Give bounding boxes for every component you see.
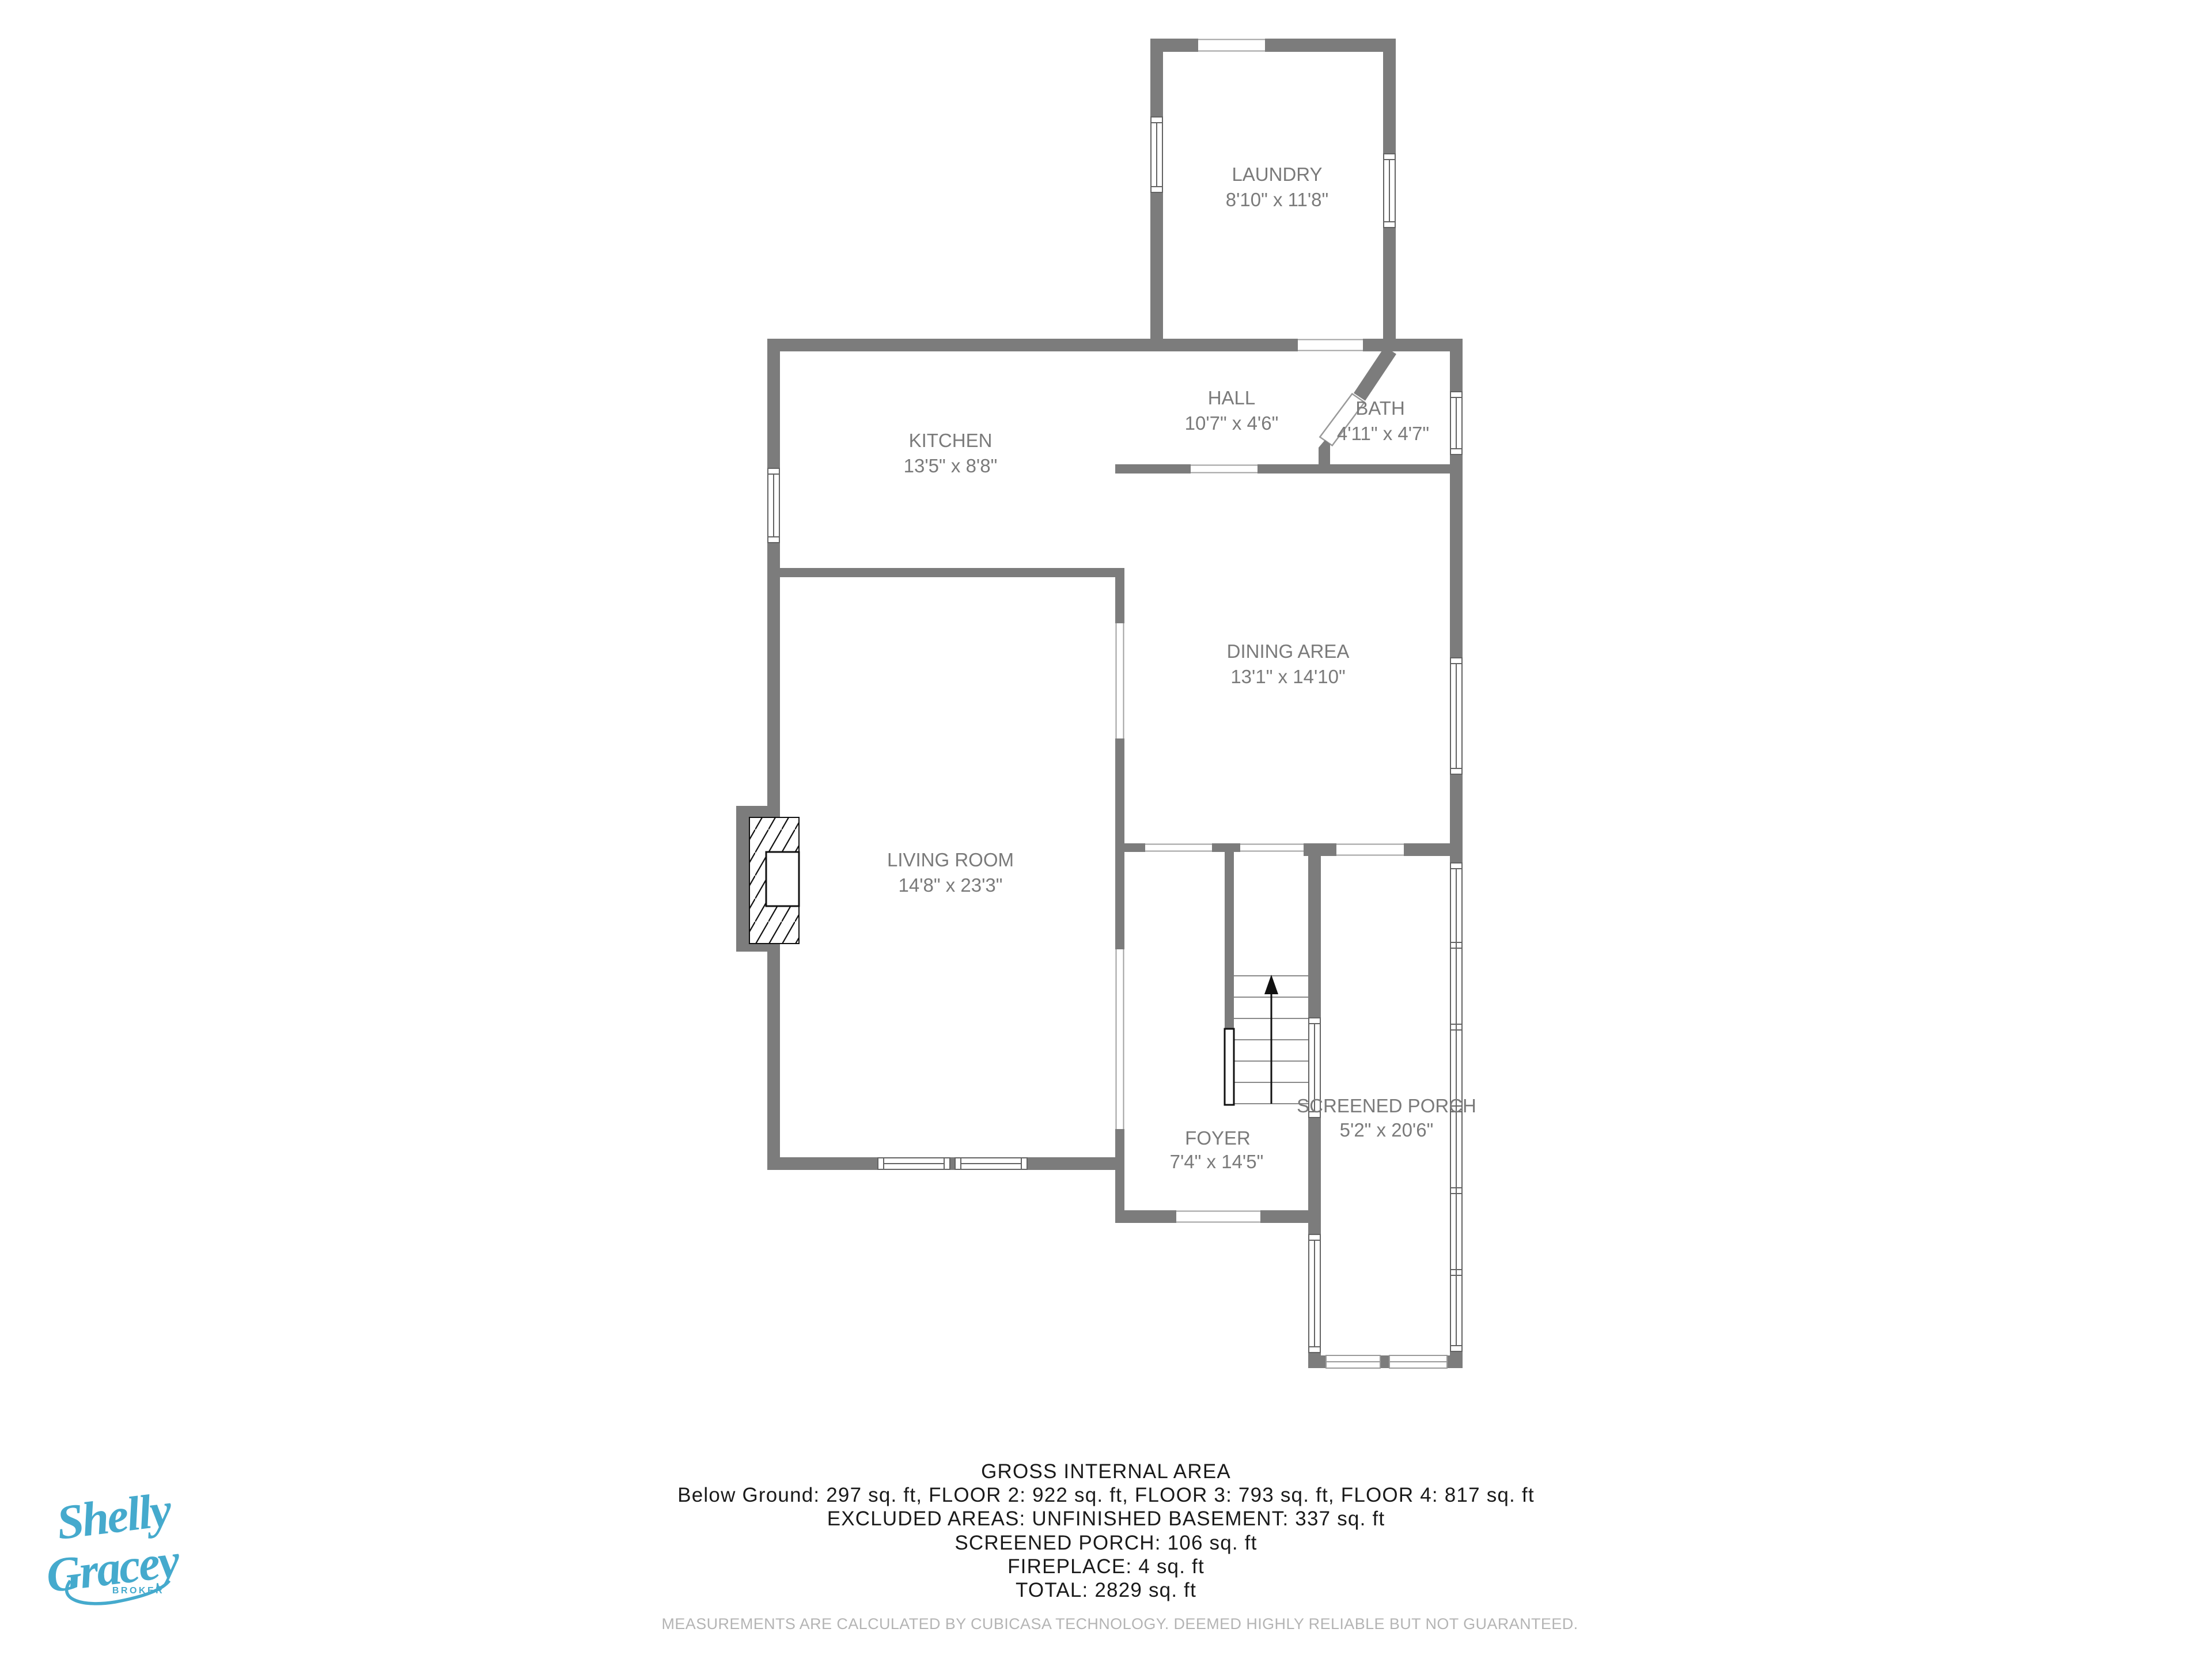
svg-text:Below Ground: 297 sq. ft, FLOO: Below Ground: 297 sq. ft, FLOOR 2: 922 s… bbox=[677, 1484, 1535, 1506]
svg-text:BATH: BATH bbox=[1355, 397, 1405, 419]
svg-text:EXCLUDED AREAS: UNFINISHED BAS: EXCLUDED AREAS: UNFINISHED BASEMENT: 337… bbox=[827, 1508, 1385, 1530]
svg-text:DINING AREA: DINING AREA bbox=[1227, 641, 1350, 662]
svg-text:LAUNDRY: LAUNDRY bbox=[1232, 164, 1322, 185]
svg-text:FIREPLACE: 4 sq. ft: FIREPLACE: 4 sq. ft bbox=[1007, 1555, 1205, 1578]
svg-text:4'11" x 4'7": 4'11" x 4'7" bbox=[1337, 423, 1429, 444]
svg-text:7'4" x 14'5": 7'4" x 14'5" bbox=[1170, 1151, 1264, 1172]
svg-text:13'1" x 14'10": 13'1" x 14'10" bbox=[1230, 666, 1345, 687]
svg-text:HALL: HALL bbox=[1208, 387, 1256, 408]
svg-text:SCREENED PORCH: 106 sq. ft: SCREENED PORCH: 106 sq. ft bbox=[955, 1532, 1257, 1554]
svg-text:5'2" x 20'6": 5'2" x 20'6" bbox=[1340, 1119, 1434, 1141]
svg-text:10'7" x 4'6": 10'7" x 4'6" bbox=[1185, 412, 1279, 434]
svg-text:TOTAL: 2829 sq. ft: TOTAL: 2829 sq. ft bbox=[1016, 1579, 1196, 1601]
svg-text:8'10" x 11'8": 8'10" x 11'8" bbox=[1226, 189, 1329, 210]
svg-text:FOYER: FOYER bbox=[1185, 1127, 1251, 1149]
svg-text:SCREENED PORCH: SCREENED PORCH bbox=[1297, 1095, 1476, 1116]
svg-text:GROSS INTERNAL AREA: GROSS INTERNAL AREA bbox=[981, 1460, 1231, 1483]
svg-text:KITCHEN: KITCHEN bbox=[909, 430, 993, 451]
svg-text:LIVING ROOM: LIVING ROOM bbox=[887, 849, 1014, 870]
svg-text:14'8" x 23'3": 14'8" x 23'3" bbox=[899, 874, 1003, 896]
svg-text:MEASUREMENTS ARE CALCULATED BY: MEASUREMENTS ARE CALCULATED BY CUBICASA … bbox=[662, 1615, 1578, 1633]
svg-text:13'5" x 8'8": 13'5" x 8'8" bbox=[904, 455, 998, 476]
